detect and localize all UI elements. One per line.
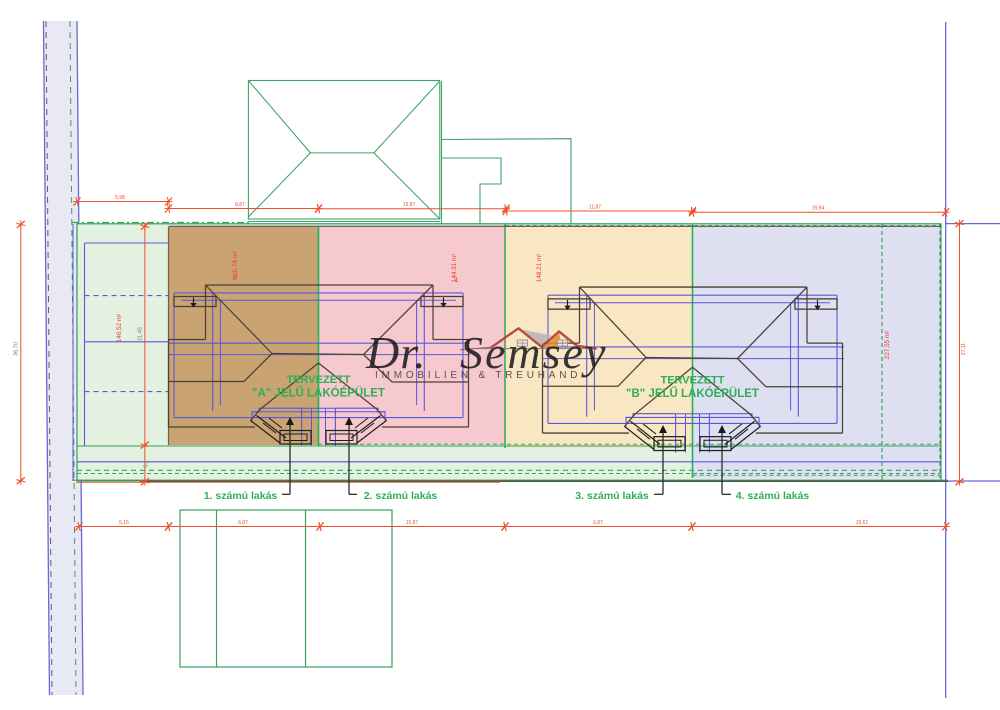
svg-text:TERVEZETT: TERVEZETT [661, 375, 725, 387]
svg-text:10,87: 10,87 [406, 520, 419, 526]
svg-text:11,87: 11,87 [589, 205, 601, 211]
svg-text:36,70: 36,70 [14, 342, 20, 356]
svg-text:27,11: 27,11 [961, 343, 967, 355]
svg-text:2: 2 [233, 275, 237, 282]
svg-text:19,94: 19,94 [812, 206, 825, 212]
svg-text:5,2: 5,2 [144, 460, 150, 467]
svg-text:146,52 m²: 146,52 m² [116, 314, 123, 342]
svg-text:IMMOBILIEN & TREUHAND: IMMOBILIEN & TREUHAND [375, 370, 581, 381]
svg-text:6,87: 6,87 [238, 520, 248, 526]
svg-text:227,55 m²: 227,55 m² [884, 331, 891, 359]
svg-text:5,98: 5,98 [115, 195, 125, 201]
svg-text:1: 1 [454, 277, 458, 284]
svg-text:"B" JELŰ LAKÓÉPÜLET: "B" JELŰ LAKÓÉPÜLET [626, 387, 759, 400]
svg-text:"A" JELŰ LAKÓÉPÜLET: "A" JELŰ LAKÓÉPÜLET [252, 387, 385, 400]
svg-text:8,87: 8,87 [235, 202, 245, 208]
svg-text:3. számú lakás: 3. számú lakás [575, 490, 649, 502]
svg-text:1. számú lakás: 1. számú lakás [204, 490, 278, 502]
svg-text:5,15: 5,15 [119, 520, 129, 526]
svg-text:15,61: 15,61 [856, 520, 869, 526]
svg-text:6,87: 6,87 [593, 520, 603, 526]
svg-text:15,87: 15,87 [403, 202, 416, 208]
svg-text:TERVEZETT: TERVEZETT [287, 374, 351, 386]
svg-text:4. számú lakás: 4. számú lakás [736, 490, 810, 502]
svg-text:148,21 m²: 148,21 m² [536, 254, 543, 282]
svg-text:2. számú lakás: 2. számú lakás [364, 490, 438, 502]
svg-text:21,45: 21,45 [138, 327, 144, 341]
